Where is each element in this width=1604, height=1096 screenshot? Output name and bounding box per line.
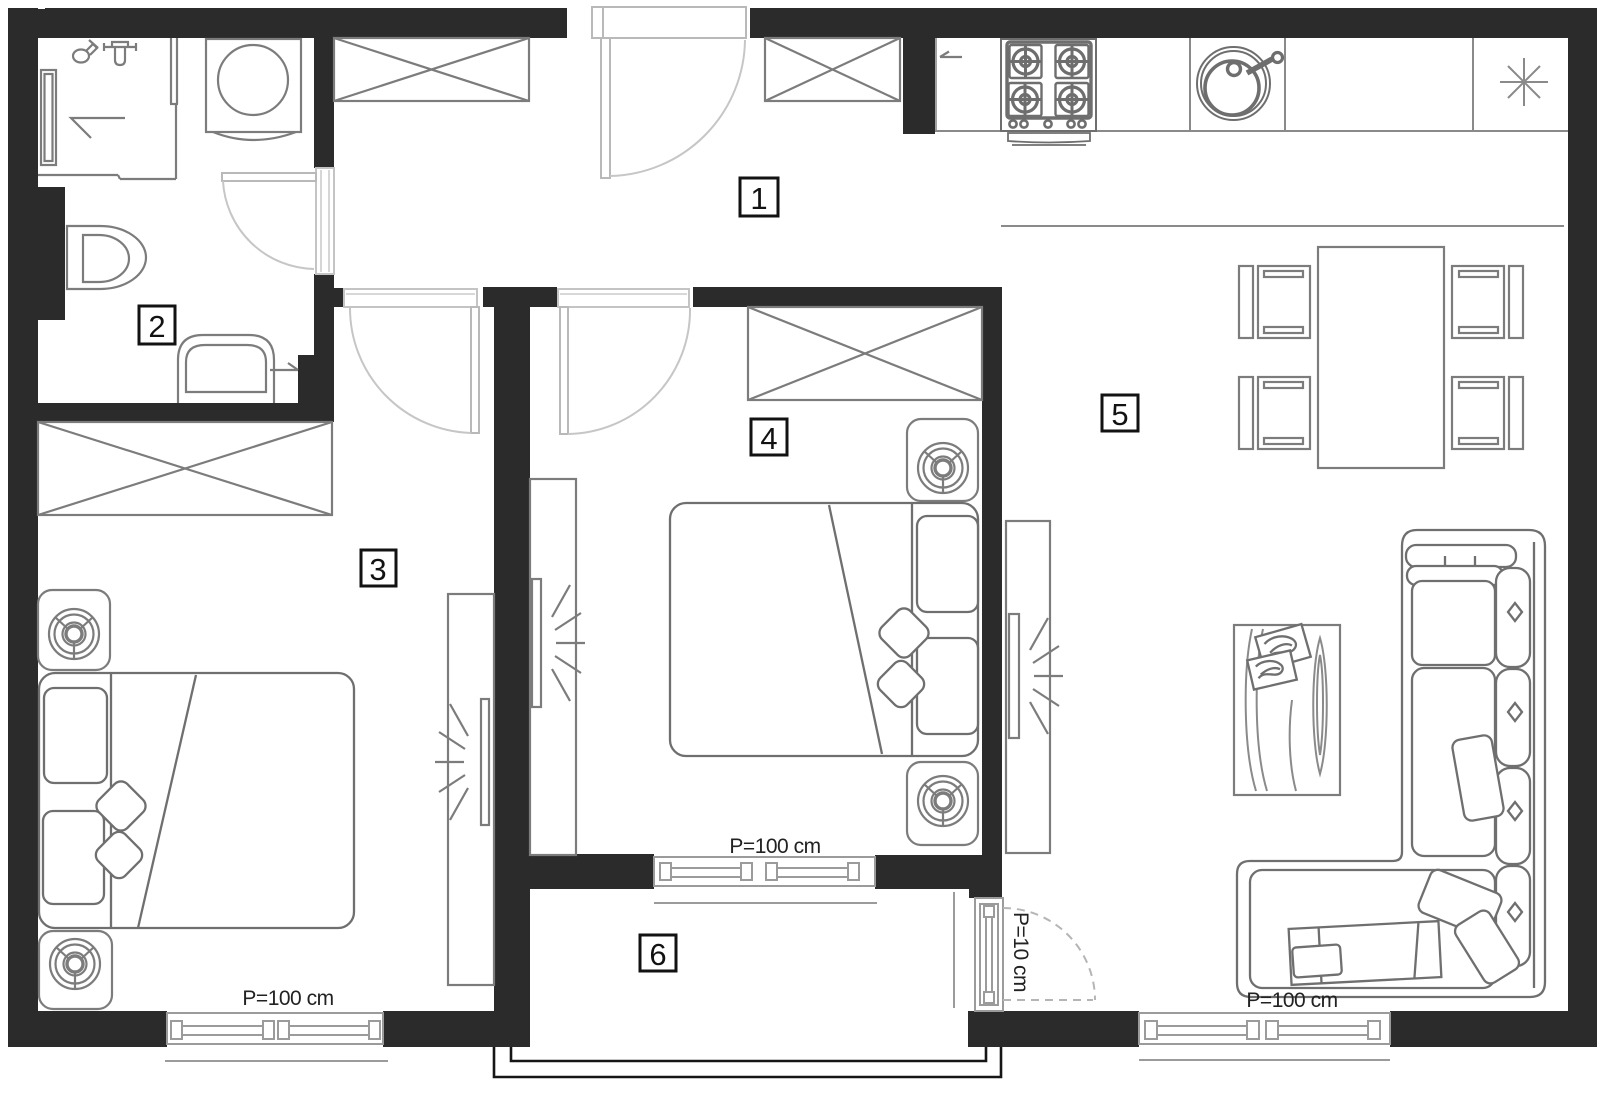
svg-text:P=100 cm: P=100 cm	[729, 835, 820, 858]
svg-text:P=100 cm: P=100 cm	[242, 987, 333, 1010]
svg-text:P=10 cm: P=10 cm	[1009, 912, 1032, 992]
svg-text:6: 6	[649, 937, 666, 972]
svg-text:P=100 cm: P=100 cm	[1246, 989, 1337, 1012]
svg-text:4: 4	[760, 421, 777, 456]
svg-text:3: 3	[369, 552, 386, 587]
svg-text:5: 5	[1111, 397, 1128, 432]
svg-text:1: 1	[750, 181, 767, 216]
svg-text:2: 2	[148, 309, 165, 344]
